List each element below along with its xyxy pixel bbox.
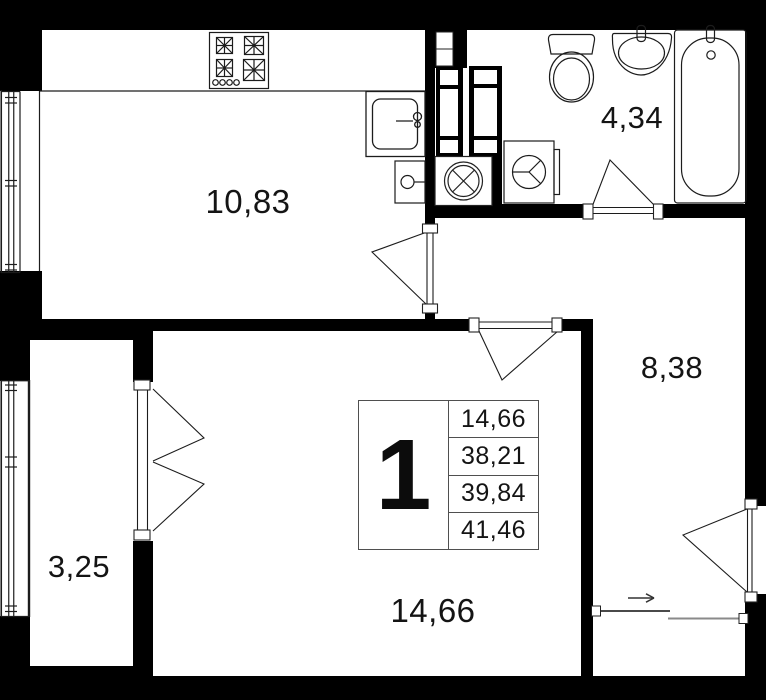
boiler-icon xyxy=(395,161,425,203)
unit-stat-row: 38,21 xyxy=(449,437,538,474)
stove-burner xyxy=(217,60,233,77)
kitchen-window xyxy=(1,90,20,273)
unit-number: 1 xyxy=(359,401,448,549)
bathroom-door xyxy=(583,160,663,219)
kitchen-sink-icon xyxy=(366,92,425,157)
living-room-door xyxy=(469,318,562,380)
wash-basin-icon xyxy=(612,26,671,76)
unit-stats: 14,66 38,21 39,84 41,46 xyxy=(448,401,538,549)
living-room-area-label: 14,66 xyxy=(390,592,475,630)
stove-burner xyxy=(217,38,233,54)
entrance-door xyxy=(683,499,757,602)
stove-burner xyxy=(245,37,264,55)
balcony-glazing xyxy=(1,380,29,617)
toilet-icon xyxy=(548,35,594,103)
hallway-area-label: 8,38 xyxy=(641,350,703,386)
kitchen-area-label: 10,83 xyxy=(205,183,290,221)
balcony-area-label: 3,25 xyxy=(48,549,110,585)
vent-fan-icon xyxy=(435,157,492,206)
bathtub-icon xyxy=(675,26,747,204)
floor-plan: 10,83 4,34 8,38 14,66 3,25 1 14,66 38,21… xyxy=(0,0,766,700)
kitchen-door xyxy=(372,224,438,313)
stove-burner xyxy=(244,60,265,81)
unit-stat-row: 14,66 xyxy=(449,401,538,437)
bathroom-area-label: 4,34 xyxy=(601,100,663,136)
stove-icon xyxy=(210,33,269,89)
unit-stat-row: 41,46 xyxy=(449,512,538,549)
balcony-window-door xyxy=(134,380,204,540)
kitchen-counter-line xyxy=(40,91,426,271)
washing-machine-icon xyxy=(504,141,560,203)
closet-sliding-door xyxy=(592,606,749,624)
unit-info-table: 1 14,66 38,21 39,84 41,46 xyxy=(358,400,539,550)
unit-stat-row: 39,84 xyxy=(449,475,538,512)
entrance-arrow-icon xyxy=(628,594,654,602)
